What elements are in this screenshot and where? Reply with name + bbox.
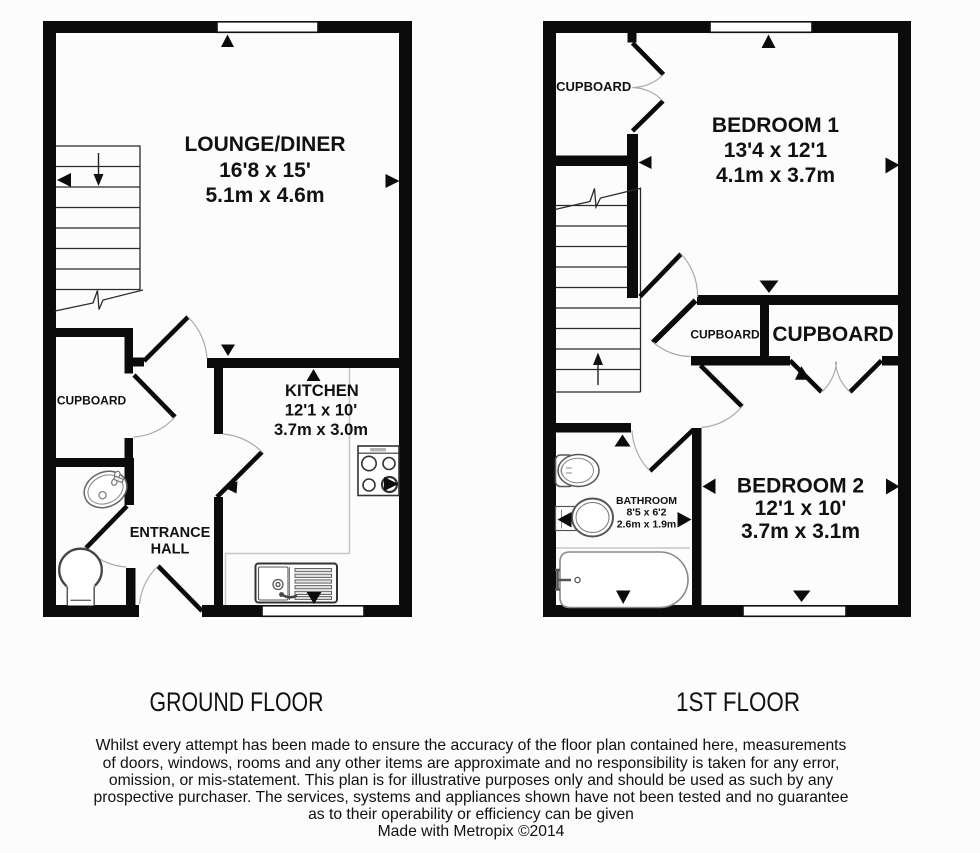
svg-text:16'8 x 15': 16'8 x 15'	[219, 159, 311, 182]
svg-text:ENTRANCE: ENTRANCE	[130, 525, 211, 541]
svg-text:8'5 x 6'2: 8'5 x 6'2	[626, 507, 666, 519]
svg-text:CUPBOARD: CUPBOARD	[57, 394, 127, 408]
svg-text:12'1 x 10': 12'1 x 10'	[285, 401, 358, 420]
svg-text:12'1 x 10': 12'1 x 10'	[755, 497, 847, 520]
svg-text:prospective purchaser. The ser: prospective purchaser. The services, sys…	[94, 789, 849, 806]
svg-text:3.7m x 3.0m: 3.7m x 3.0m	[274, 420, 368, 439]
svg-text:2.6m x 1.9m: 2.6m x 1.9m	[617, 519, 677, 531]
svg-text:BEDROOM 2: BEDROOM 2	[737, 475, 864, 498]
svg-text:GROUND FLOOR: GROUND FLOOR	[150, 687, 324, 717]
svg-text:KITCHEN: KITCHEN	[285, 381, 359, 400]
svg-text:CUPBOARD: CUPBOARD	[772, 323, 893, 346]
svg-text:13'4 x 12'1: 13'4 x 12'1	[724, 139, 828, 162]
svg-text:omission, or mis-statement. Th: omission, or mis-statement. This plan is…	[109, 772, 833, 789]
svg-text:as to their operability or eff: as to their operability or efficiency ca…	[308, 806, 634, 823]
svg-text:1ST FLOOR: 1ST FLOOR	[676, 687, 800, 717]
svg-text:Made with Metropix ©2014: Made with Metropix ©2014	[378, 823, 565, 840]
svg-text:BATHROOM: BATHROOM	[616, 495, 677, 507]
svg-text:HALL: HALL	[151, 542, 190, 558]
svg-text:4.1m x 3.7m: 4.1m x 3.7m	[716, 164, 835, 187]
svg-text:BEDROOM 1: BEDROOM 1	[712, 114, 840, 137]
svg-text:CUPBOARD: CUPBOARD	[556, 79, 631, 94]
svg-text:Whilst every attempt has been: Whilst every attempt has been made to en…	[96, 737, 847, 754]
svg-text:5.1m x 4.6m: 5.1m x 4.6m	[205, 184, 324, 207]
svg-text:CUPBOARD: CUPBOARD	[690, 328, 760, 342]
svg-text:of doors, windows, rooms and a: of doors, windows, rooms and any other i…	[103, 755, 840, 772]
svg-text:3.7m x 3.1m: 3.7m x 3.1m	[741, 520, 860, 543]
svg-text:LOUNGE/DINER: LOUNGE/DINER	[184, 133, 345, 156]
